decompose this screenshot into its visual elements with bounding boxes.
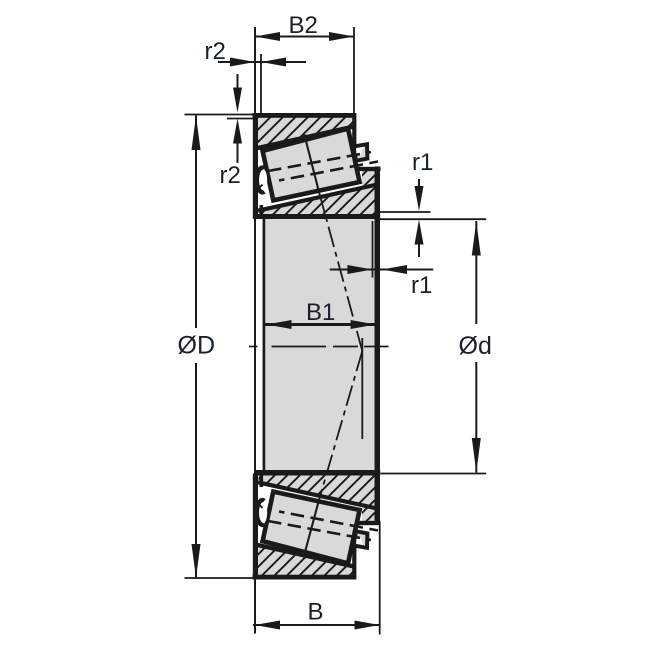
svg-text:B2: B2 [289,12,318,39]
svg-text:r1: r1 [412,149,433,176]
svg-text:ØD: ØD [178,332,216,360]
svg-text:r1: r1 [411,272,432,299]
svg-text:Ød: Ød [459,332,492,360]
svg-text:r2: r2 [220,162,241,189]
svg-text:r2: r2 [205,38,226,65]
svg-text:B: B [308,599,324,626]
svg-text:B1: B1 [306,299,335,326]
